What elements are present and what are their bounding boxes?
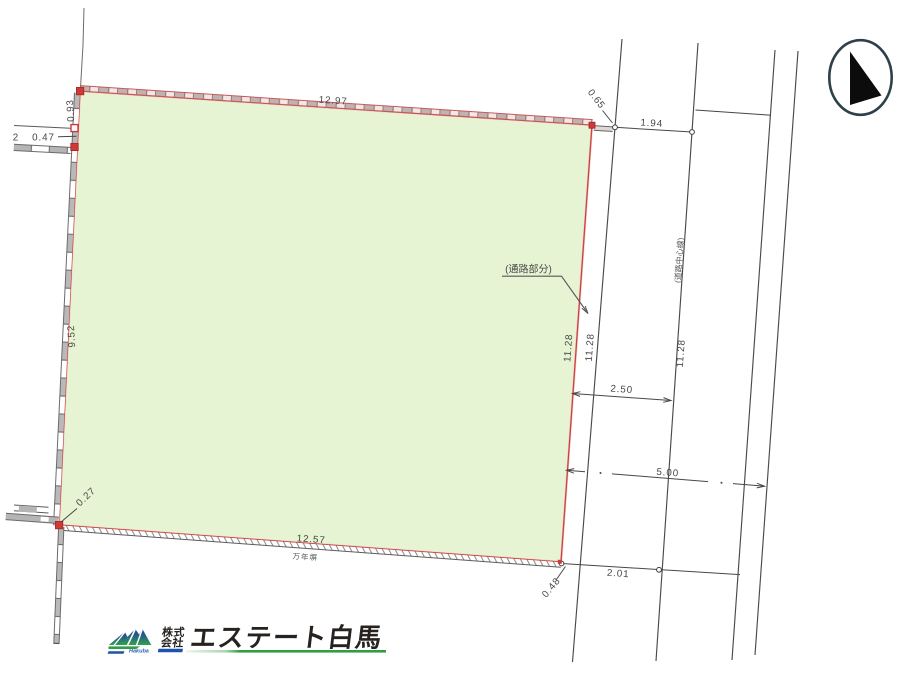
svg-text:1.94: 1.94 — [640, 118, 663, 130]
svg-text:万年塀: 万年塀 — [292, 551, 318, 563]
svg-text:0.93: 0.93 — [65, 99, 77, 122]
svg-text:11.28: 11.28 — [584, 333, 597, 362]
svg-text:12.57: 12.57 — [296, 533, 326, 546]
svg-text:11.28: 11.28 — [675, 339, 688, 368]
svg-text:9.52: 9.52 — [66, 325, 78, 348]
svg-text:2.01: 2.01 — [606, 568, 629, 580]
svg-text:12.97: 12.97 — [318, 95, 348, 108]
svg-text:(通路部分): (通路部分) — [505, 262, 552, 275]
svg-text:会社: 会社 — [160, 636, 184, 650]
svg-text:0.47: 0.47 — [32, 133, 55, 144]
svg-text:5.00: 5.00 — [656, 467, 679, 480]
svg-text:11.28: 11.28 — [562, 333, 575, 362]
svg-text:2.50: 2.50 — [610, 384, 633, 397]
svg-text:エステート白馬: エステート白馬 — [189, 623, 385, 653]
svg-text:2: 2 — [13, 133, 18, 144]
svg-text:Hakuba: Hakuba — [129, 649, 149, 655]
